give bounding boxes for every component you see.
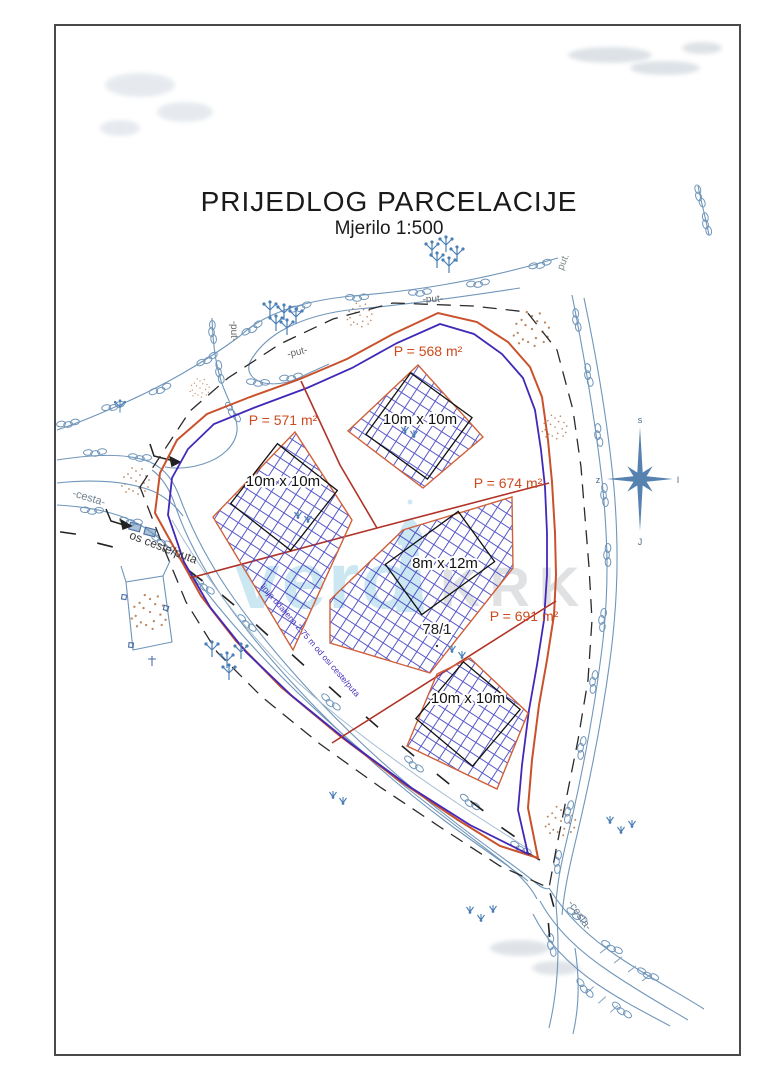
parcel-571-area-label: P = 571 m² bbox=[249, 412, 318, 428]
scanned-plan-page: vero KRK bbox=[0, 0, 764, 1080]
parcel-691-dimension-label: 10m x 10m bbox=[431, 690, 505, 707]
parcel-568-area-label: P = 568 m² bbox=[394, 343, 463, 359]
compass-north-label: s bbox=[638, 415, 643, 425]
parcellation-drawing: vero KRK bbox=[0, 0, 764, 1080]
parcel-691-area-label: P = 691 m² bbox=[490, 608, 559, 624]
parcel-571-dimension-label: 10m x 10m bbox=[246, 473, 320, 490]
compass-south-label: J bbox=[638, 537, 643, 547]
page-title: PRIJEDLOG PARCELACIJE bbox=[201, 186, 578, 217]
path-label-put-2: -put- bbox=[422, 293, 443, 305]
plot-number: 78/1 bbox=[422, 621, 451, 638]
compass-east-label: I bbox=[677, 475, 680, 485]
plot-number-dot bbox=[436, 645, 438, 647]
parcel-568-dimension-label: 10m x 10m bbox=[383, 411, 457, 428]
parcel-674-dimension-label: 8m x 12m bbox=[412, 555, 478, 572]
path-label-put-vertical: -put- bbox=[228, 321, 239, 342]
compass-west-label: z bbox=[596, 475, 601, 485]
parcel-674-area-label: P = 674 m² bbox=[474, 475, 543, 491]
scale-label: Mjerilo 1:500 bbox=[335, 218, 444, 239]
